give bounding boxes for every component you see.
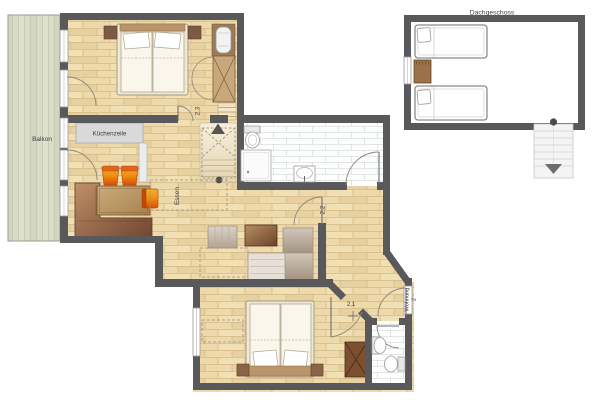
floorplan-svg: Dachgeschoss Balkon Küchenzeile Essen 2,…: [0, 0, 600, 400]
pillow: [154, 32, 181, 49]
balcony: [8, 15, 60, 241]
room-number-23: 2,3: [195, 106, 202, 115]
kitchenette-label: Küchenzeile: [93, 131, 127, 138]
attic-bed: [415, 86, 487, 120]
toilet: [246, 132, 260, 148]
attic-stairs: [534, 118, 573, 178]
wc-toilet: [385, 356, 398, 372]
room-number-22: 2,2: [320, 205, 327, 214]
attic-room: [404, 15, 585, 178]
bedroom-north: [104, 24, 235, 102]
floorplan-canvas: Dachgeschoss Balkon Küchenzeile Essen 2,…: [0, 0, 600, 400]
sofa-chaise: [283, 228, 313, 254]
balcony-label: Balkon: [32, 136, 52, 143]
room-number-21: 2,1: [347, 301, 356, 308]
nightstand: [104, 26, 117, 39]
tall-cabinet: [139, 143, 147, 182]
attic-bed: [415, 25, 487, 58]
entrance-label: Wohnung: [405, 288, 411, 312]
dining-label: Essen: [174, 187, 181, 205]
wc-toilet-tank: [398, 357, 405, 371]
pillow: [253, 350, 278, 368]
sideboard: [245, 225, 277, 246]
dresser: [208, 226, 237, 248]
shower: [241, 150, 271, 181]
stair-pivot-dot: [550, 118, 557, 125]
nightstand: [311, 364, 323, 376]
nightstand: [237, 364, 249, 376]
entrance-label-number: 2: [412, 298, 418, 301]
nightstand: [188, 26, 201, 39]
attic-title: Dachgeschoss: [470, 10, 515, 17]
pillow: [123, 32, 150, 49]
pillow: [283, 350, 308, 368]
